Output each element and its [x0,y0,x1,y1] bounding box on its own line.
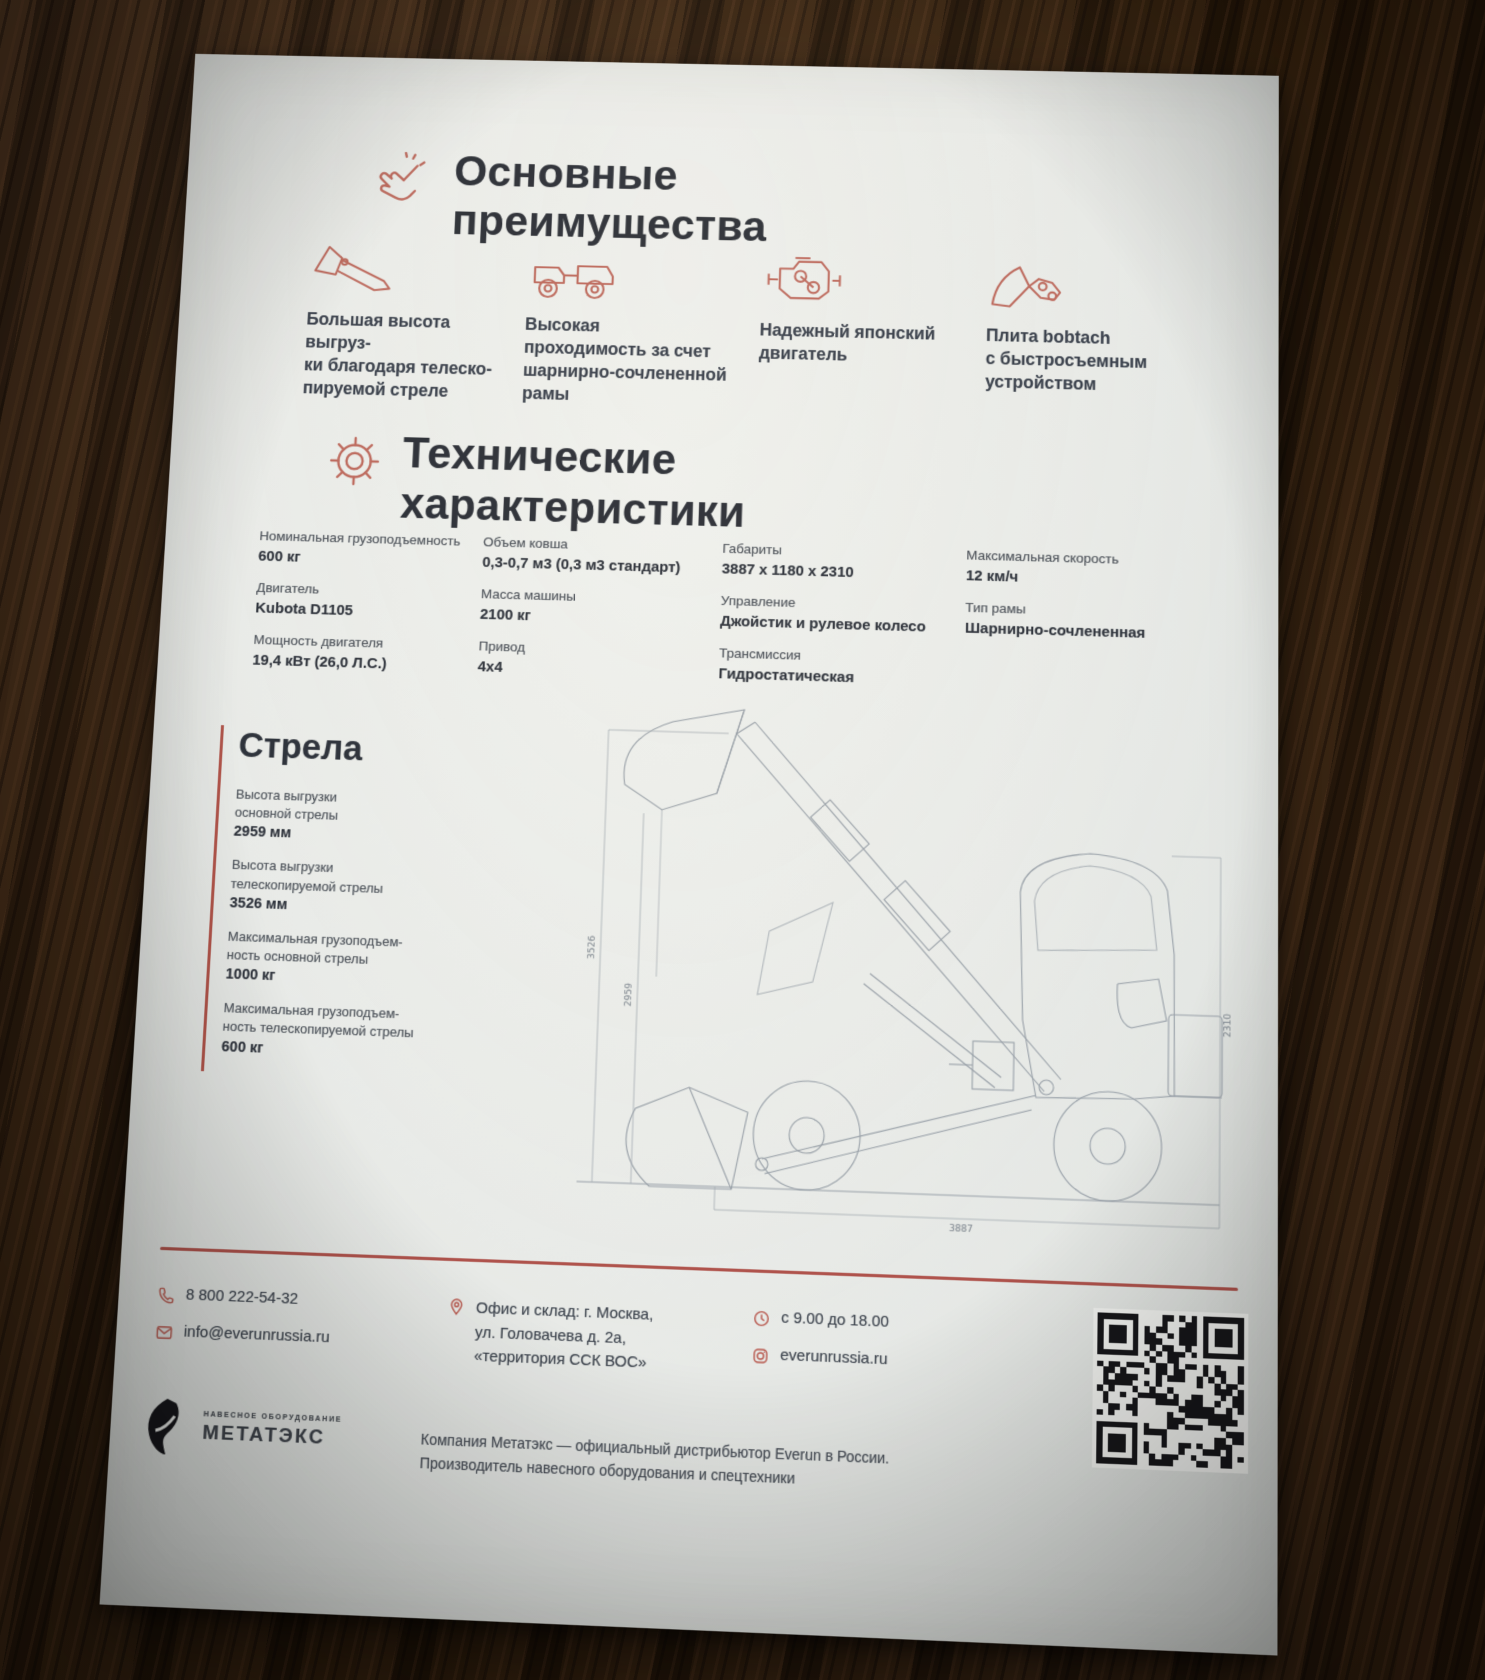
hours-row: с 9.00 до 18.00 [752,1308,889,1334]
specs-header: Технические характеристики [323,427,748,539]
advantage-item: Надежный японский двигатель [757,246,972,417]
specs-column-3: Габариты 3887 х 1180 х 2310 Управление Д… [718,540,966,691]
articulated-loader-icon [526,240,747,306]
boom-title: Стрела [238,726,510,774]
spec-pair: Масса машины 2100 кг [480,585,721,630]
bobtach-plate-icon [986,251,1179,317]
advantages-header: Основные преимущества [372,146,769,252]
loader-drawing: 3526 2959 2310 3887 [549,671,1234,1254]
phone-icon [157,1286,176,1306]
advantage-item: Большая высота выгруз- ки благодаря теле… [302,235,514,404]
advantage-text: Плита bobtach с быстросъемным устройство… [985,324,1179,399]
gear-icon [325,432,385,490]
dim-label-left-outer: 3526 [587,935,598,959]
spec-pair: Номинальная грузоподъемность 600 кг [258,527,484,571]
specs-column-4: Максимальная скорость 12 км/ч Тип рамы Ш… [964,547,1187,697]
bucket-boom-icon [308,235,514,300]
metateks-logo-mark [139,1395,192,1459]
email-row: info@everunrussia.ru [155,1322,331,1349]
boom-label: Высота выгрузки основной стрелы [234,785,507,830]
advantage-text: Надежный японский двигатель [759,318,972,370]
spec-value: 19,4 кВт (26,0 Л.С.) [252,650,478,676]
specs-column-2: Объем ковша 0,3-0,7 м3 (0,3 м3 стандарт)… [477,533,722,683]
spec-value: Kubota D1105 [255,598,481,624]
phone-number: 8 800 222-54-32 [185,1286,298,1308]
advantages-row: Большая высота выгруз- ки благодаря теле… [302,235,1179,421]
spec-pair: Тип рамы Шарнирно-сочлененная [965,599,1187,644]
flyer-page: Основные преимущества Большая высота выг… [100,54,1279,1656]
email-address: info@everunrussia.ru [183,1323,330,1347]
spec-pair: Двигатель Kubota D1105 [255,579,481,624]
dim-label-left-inner: 2959 [624,983,635,1007]
advantage-text: Высокая проходимость за счет шарнирно-со… [522,313,746,411]
boom-label: Высота выгрузки телескопируемой стрелы [230,856,504,902]
working-hours: с 9.00 до 18.00 [781,1309,889,1331]
hand-click-icon [373,151,436,210]
website-row: everunrussia.ru [751,1345,888,1371]
advantages-title: Основные преимущества [451,148,769,253]
boom-item: Высота выгрузки телескопируемой стрелы 3… [229,856,504,920]
distributor-description: Компания Метатэкс — официальный дистрибь… [419,1427,1046,1501]
spec-value: 600 кг [258,546,483,571]
brand-name: МЕТАТЭКС [202,1422,342,1451]
advantage-item: Высокая проходимость за счет шарнирно-со… [522,240,748,410]
spec-pair: Максимальная скорость 12 км/ч [966,547,1187,592]
instagram-icon [751,1346,770,1366]
boom-label: Максимальная грузоподъем- ность основной… [226,927,501,973]
spec-pair: Управление Джойстик и рулевое колесо [720,592,966,638]
spec-value: 2100 кг [480,605,721,631]
boom-section: Стрела Высота выгрузки основной стрелы 2… [201,725,510,1081]
phone-row: 8 800 222-54-32 [157,1285,332,1312]
advantage-item: Плита bobtach с быстросъемным устройство… [985,251,1180,422]
specs-title: Технические характеристики [399,428,747,538]
dim-label-bottom: 3887 [949,1224,973,1236]
spec-value: 3887 х 1180 х 2310 [721,559,966,585]
boom-item: Максимальная грузоподъем- ность телескоп… [221,999,498,1064]
footer-contacts-right: с 9.00 до 18.00 everunrussia.ru [751,1308,889,1371]
address-block: Офис и склад: г. Москва, ул. Головачева … [445,1296,654,1376]
spec-value: Шарнирно-сочлененная [965,618,1187,644]
spec-pair: Мощность двигателя 19,4 кВт (26,0 Л.С.) [252,631,479,676]
clock-icon [752,1309,771,1329]
boom-item: Высота выгрузки основной стрелы 2959 мм [233,785,507,848]
brand-block: НАВЕСНОЕ ОБОРУДОВАНИЕ МЕТАТЭКС [139,1395,343,1465]
spec-pair: Габариты 3887 х 1180 х 2310 [721,540,966,585]
website-url: everunrussia.ru [780,1346,888,1368]
mail-icon [155,1323,174,1343]
footer-contacts-left: 8 800 222-54-32 info@everunrussia.ru [155,1285,332,1349]
location-pin-icon [447,1297,466,1317]
brand-text: НАВЕСНОЕ ОБОРУДОВАНИЕ МЕТАТЭКС [202,1411,343,1451]
qr-code [1092,1308,1249,1474]
boom-item: Максимальная грузоподъем- ность основной… [225,927,501,992]
address-lines: Офис и склад: г. Москва, ул. Головачева … [473,1297,653,1376]
spec-value: 12 км/ч [966,566,1187,591]
spec-value: 0,3-0,7 м3 (0,3 м3 стандарт) [482,553,722,579]
footer-divider [160,1247,1238,1291]
spec-pair: Объем ковша 0,3-0,7 м3 (0,3 м3 стандарт) [482,533,723,578]
dim-label-right: 2310 [1223,1013,1234,1037]
specs-grid: Номинальная грузоподъемность 600 кг Двиг… [252,527,1232,698]
specs-column-1: Номинальная грузоподъемность 600 кг Двиг… [252,527,484,676]
engine-icon [760,246,972,312]
advantage-text: Большая высота выгруз- ки благодаря теле… [302,307,511,404]
